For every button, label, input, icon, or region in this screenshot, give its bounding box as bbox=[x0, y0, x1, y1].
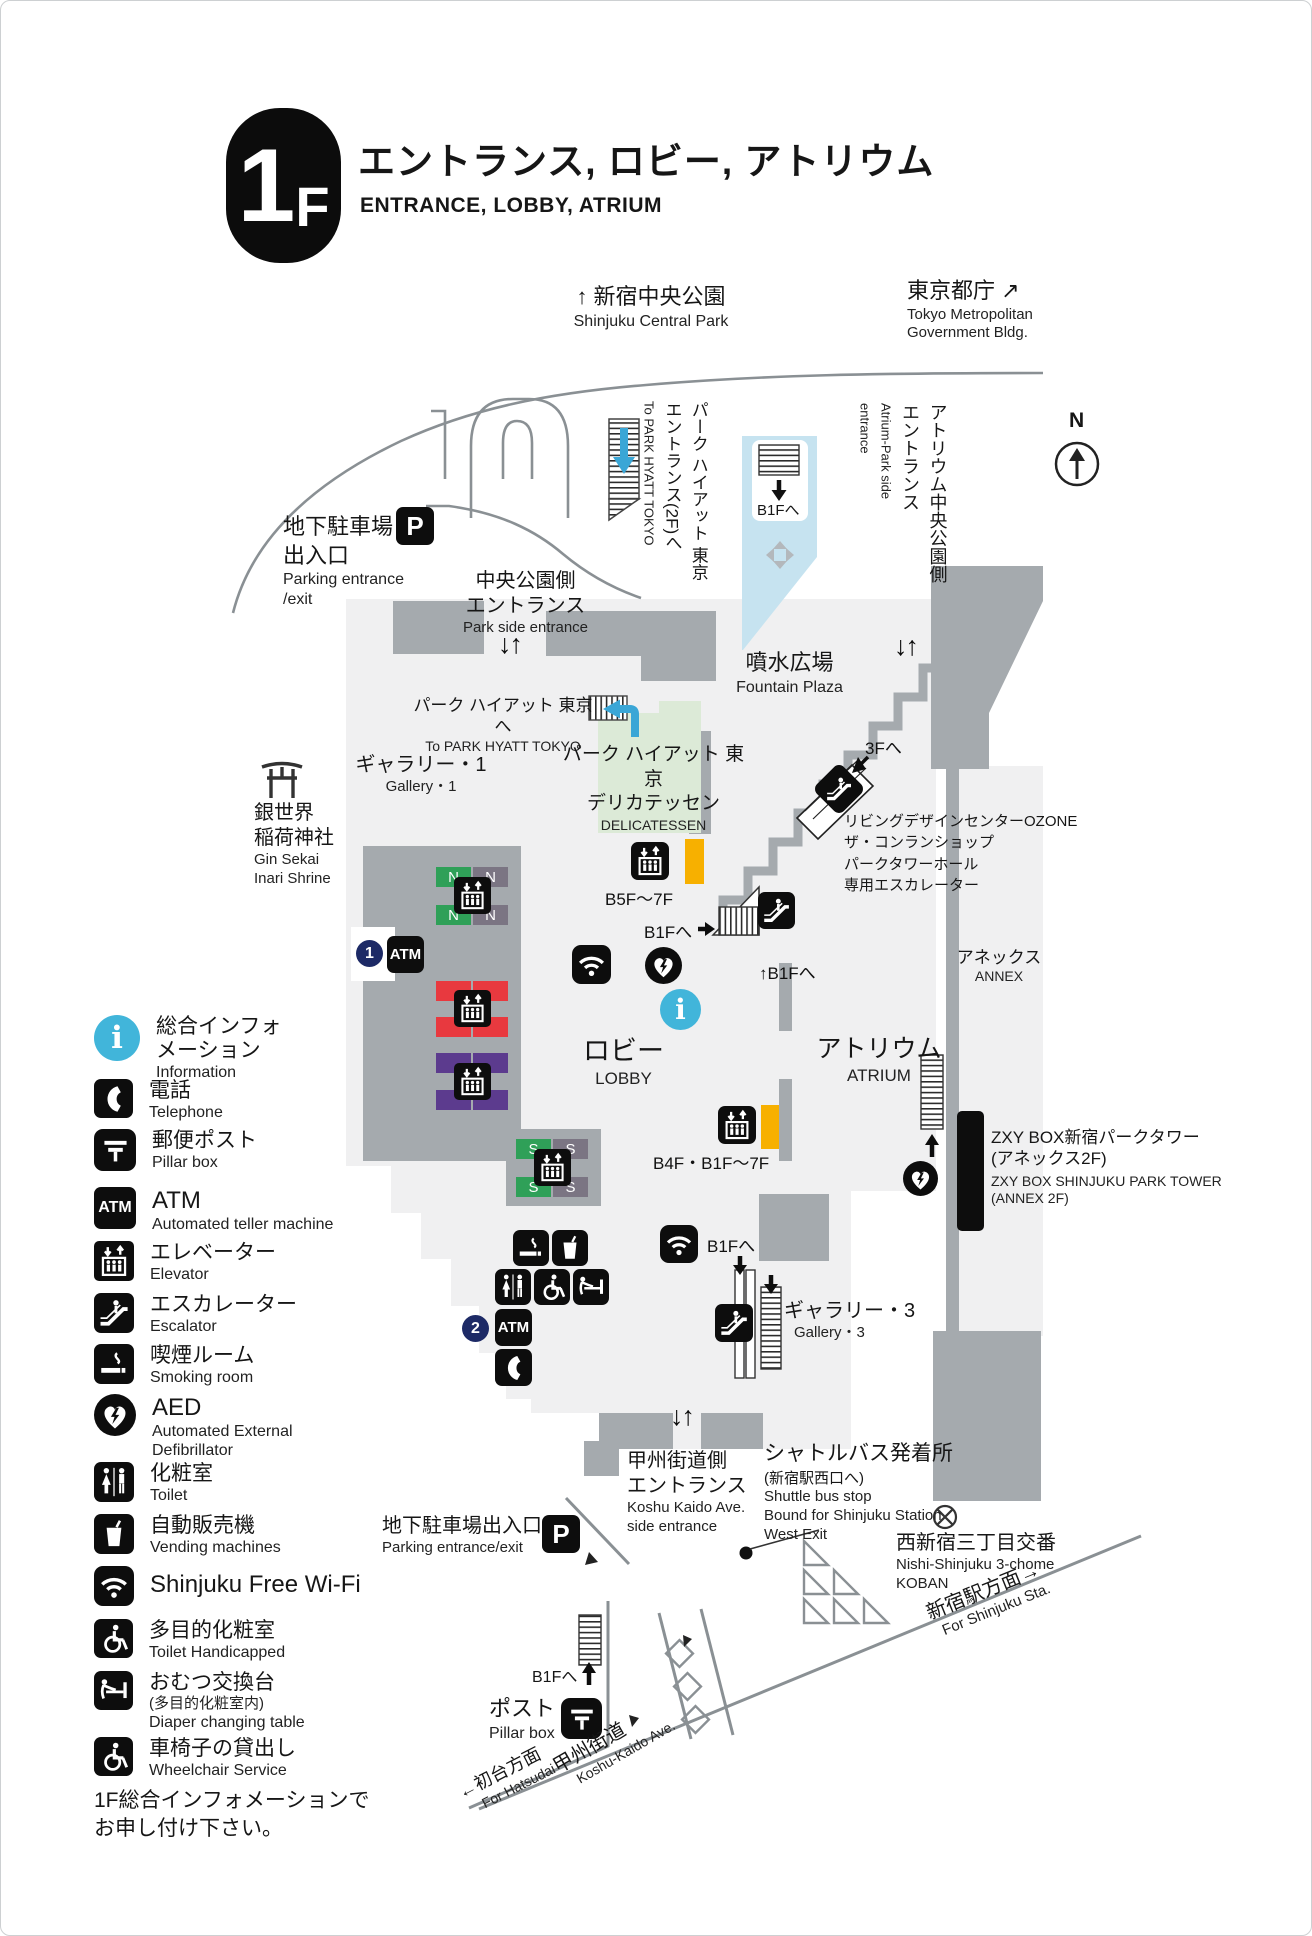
escalator-icon-grandstair bbox=[758, 892, 795, 929]
label-atrium-park-entrance: アトリウム中央公園側 エントランス Atrium-Park side entra… bbox=[851, 403, 949, 713]
escalator-icon bbox=[94, 1293, 134, 1333]
escalator-icon-b1f bbox=[715, 1304, 753, 1342]
elevator-icon-b4f bbox=[718, 1106, 756, 1144]
floor-map-page: 1F 1F エントランス, ロビー, アトリウム ENTRANCE, LOBBY… bbox=[0, 0, 1312, 1936]
floor-badge: 1F 1F bbox=[226, 108, 341, 263]
parking-icon: P bbox=[396, 507, 434, 545]
legend-item-pillar-box: 郵便ポスト Pillar box bbox=[94, 1129, 257, 1172]
vending-machine-icon bbox=[94, 1514, 134, 1554]
label-b1f-deli-up: ↑B1Fへ bbox=[759, 959, 816, 984]
direction-tmg: 東京都庁 ↗ Tokyo Metropolitan Government Bld… bbox=[907, 277, 1033, 343]
legend-item-vending: 自動販売機 Vending machines bbox=[94, 1514, 281, 1557]
label-zxy-box: ZXY BOX新宿パークタワー (アネックス2F) ZXY BOX SHINJU… bbox=[991, 1127, 1222, 1208]
toilet-handicapped-icon bbox=[94, 1619, 133, 1658]
legend-note: 1F総合インフォメーションで お申し付け下さい。 bbox=[94, 1787, 369, 1844]
legend-item-wifi: Shinjuku Free Wi-Fi bbox=[94, 1566, 361, 1606]
floor-letter: F bbox=[295, 179, 329, 235]
label-annex: アネックス ANNEX bbox=[939, 947, 1059, 986]
label-elev-b5f: B5F〜7F bbox=[605, 885, 673, 910]
legend-item-atm: ATM ATM Automated teller machine bbox=[94, 1187, 333, 1234]
atm-icon: ATM bbox=[94, 1187, 136, 1229]
wifi-icon-lobby-2 bbox=[660, 1225, 698, 1263]
legend-item-toilet-handicapped: 多目的化粧室 Toilet Handicapped bbox=[94, 1619, 285, 1662]
direction-park: ↑ 新宿中央公園 Shinjuku Central Park bbox=[556, 283, 746, 332]
smoking-icon bbox=[94, 1344, 134, 1384]
label-gallery-3: ギャラリー・3 Gallery・3 bbox=[784, 1299, 915, 1343]
legend-item-aed: AED Automated External Defibrillator bbox=[94, 1394, 293, 1460]
toilet-icon bbox=[495, 1269, 531, 1305]
legend-item-information: i 総合インフォ メーション Information bbox=[94, 1015, 281, 1082]
label-gallery-1: ギャラリー・1 Gallery・1 bbox=[351, 753, 491, 797]
smoking-room-icon bbox=[513, 1230, 549, 1266]
zxy-box-marker bbox=[957, 1111, 984, 1231]
label-park-side-entrance: 中央公園側 エントランス Park side entrance bbox=[453, 569, 598, 638]
elevator-icon-purple bbox=[454, 1063, 491, 1100]
label-b1f-park-path: B1Fへ bbox=[757, 499, 800, 520]
legend-item-elevator: エレベーター Elevator bbox=[94, 1241, 276, 1284]
atrium-entrance-arrows: ↓↑ bbox=[894, 631, 917, 662]
label-elev-b4f: B4F・B1F〜7F bbox=[653, 1149, 769, 1174]
vending-icon bbox=[552, 1230, 588, 1266]
floor-digit: 1 bbox=[237, 134, 295, 238]
road-markings bbox=[666, 1541, 888, 1733]
label-koshu-entrance: 甲州街道側 エントランス Koshu Kaido Ave. side entra… bbox=[627, 1449, 747, 1537]
information-icon: i bbox=[94, 1015, 140, 1061]
label-shrine: 銀世界 稲荷神社 Gin Sekai Inari Shrine bbox=[254, 801, 334, 889]
atm-icon-1: ATM bbox=[387, 936, 424, 973]
label-lobby: ロビー LOBBY bbox=[561, 1029, 686, 1089]
legend-item-wheelchair-service: 車椅子の貸出し Wheelchair Service bbox=[94, 1737, 296, 1780]
legend-item-telephone: 電話 Telephone bbox=[94, 1079, 223, 1122]
toilet-handicapped-icon bbox=[534, 1269, 570, 1305]
elevator-icon-red bbox=[454, 990, 491, 1027]
telephone-icon-map bbox=[495, 1349, 532, 1386]
parking-icon-bottom: P bbox=[542, 1515, 580, 1553]
elevator-icon-b5f bbox=[631, 842, 669, 880]
torii-icon bbox=[262, 764, 302, 799]
park-side-entrance-arrows: ↓↑ bbox=[498, 629, 521, 660]
diaper-changing-icon bbox=[94, 1671, 133, 1710]
legend-item-toilet: 化粧室 Toilet bbox=[94, 1462, 213, 1505]
compass-icon bbox=[1056, 443, 1098, 485]
label-b1f-lobby: B1Fへ bbox=[707, 1232, 755, 1257]
label-fountain-plaza: 噴水広場 Fountain Plaza bbox=[717, 649, 862, 698]
label-shuttle-bus: シャトルバス発着所 (新宿駅西口へ) Shuttle bus stop Boun… bbox=[764, 1437, 953, 1544]
label-b1f-road: B1Fへ bbox=[532, 1663, 577, 1687]
legend-item-escalator: エスカレーター Escalator bbox=[94, 1293, 297, 1336]
label-parking-top: 地下駐車場 出入口 Parking entrance /exit bbox=[283, 513, 404, 610]
legend-item-smoking-room: 喫煙ルーム Smoking room bbox=[94, 1344, 254, 1387]
koshu-entrance-arrows: ↓↑ bbox=[670, 1401, 693, 1432]
information-icon-lobby: i bbox=[660, 989, 701, 1030]
pillar-box-icon bbox=[94, 1129, 136, 1171]
elevator-icon bbox=[94, 1241, 134, 1281]
label-3f: 3Fへ bbox=[865, 734, 902, 759]
compass-label: N bbox=[1069, 409, 1084, 433]
aed-icon bbox=[94, 1394, 136, 1436]
label-delicatessen: パーク ハイアット 東京 デリカテッセン DELICATESSEN bbox=[561, 743, 746, 835]
wheelchair-icon bbox=[94, 1737, 133, 1776]
label-pillar-box: ポスト Pillar box bbox=[489, 1695, 555, 1744]
page-title-jp: エントランス, ロビー, アトリウム bbox=[358, 131, 934, 185]
label-ozone: リビングデザインセンターOZONE ザ・コンランショップ パークタワーホール 専… bbox=[844, 811, 1077, 896]
label-b1f-deli: B1Fへ bbox=[644, 918, 692, 943]
page-title-en: ENTRANCE, LOBBY, ATRIUM bbox=[360, 194, 662, 218]
atm-1-number: 1 bbox=[356, 940, 383, 967]
toilet-icon bbox=[94, 1462, 134, 1502]
aed-icon-lobby bbox=[645, 947, 682, 984]
elevator-icon-s bbox=[534, 1149, 571, 1186]
elevator-icon-n bbox=[454, 877, 491, 914]
service-room-orange bbox=[685, 839, 704, 884]
label-to-hyatt-vertical: パーク ハイアット 東京 エントランス(2F)へ To PARK HYATT T… bbox=[635, 401, 709, 601]
atm-icon-2: ATM bbox=[495, 1309, 532, 1346]
atm-2-number: 2 bbox=[462, 1315, 489, 1342]
service-room-orange bbox=[761, 1105, 779, 1149]
wifi-icon-lobby-1 bbox=[572, 945, 611, 984]
diaper-table-icon bbox=[573, 1269, 609, 1305]
label-parking-bottom: 地下駐車場出入口 Parking entrance/exit bbox=[382, 1514, 542, 1558]
wifi-icon bbox=[94, 1566, 134, 1606]
telephone-icon bbox=[94, 1079, 133, 1118]
aed-icon-annex bbox=[903, 1161, 938, 1196]
label-atrium: アトリウム ATRIUM bbox=[809, 1029, 949, 1086]
legend-item-diaper-table: おむつ交換台 (多目的化粧室内) Diaper changing table bbox=[94, 1671, 305, 1732]
